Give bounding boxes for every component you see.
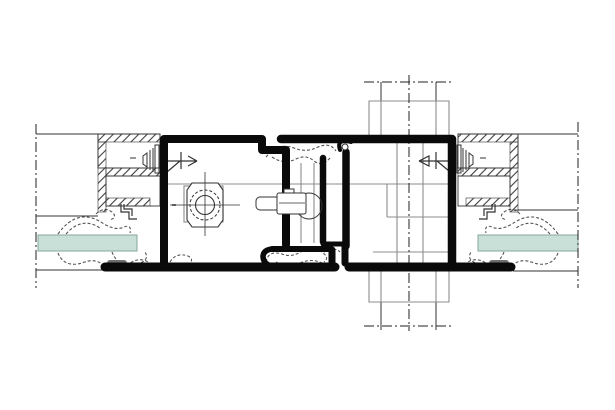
latch-bolt-tab	[284, 189, 294, 193]
hatch-band	[98, 134, 160, 142]
hatch-band	[106, 168, 160, 176]
hatch-band	[458, 134, 518, 142]
latch-bolt-body	[277, 193, 306, 214]
glass-pane-right	[478, 235, 578, 251]
hatch-band	[510, 142, 518, 212]
screw-head	[469, 153, 473, 167]
screw-head	[143, 153, 147, 167]
hatch-band	[106, 198, 150, 206]
canvas-background	[0, 0, 615, 410]
section-drawing	[0, 0, 615, 410]
hatch-band	[466, 198, 510, 206]
latch-bolt-nose	[256, 197, 280, 210]
hook-gasket-bead	[342, 144, 348, 150]
glass-pane-left	[38, 235, 137, 251]
hatch-band	[98, 142, 106, 212]
cad-canvas	[0, 0, 615, 410]
